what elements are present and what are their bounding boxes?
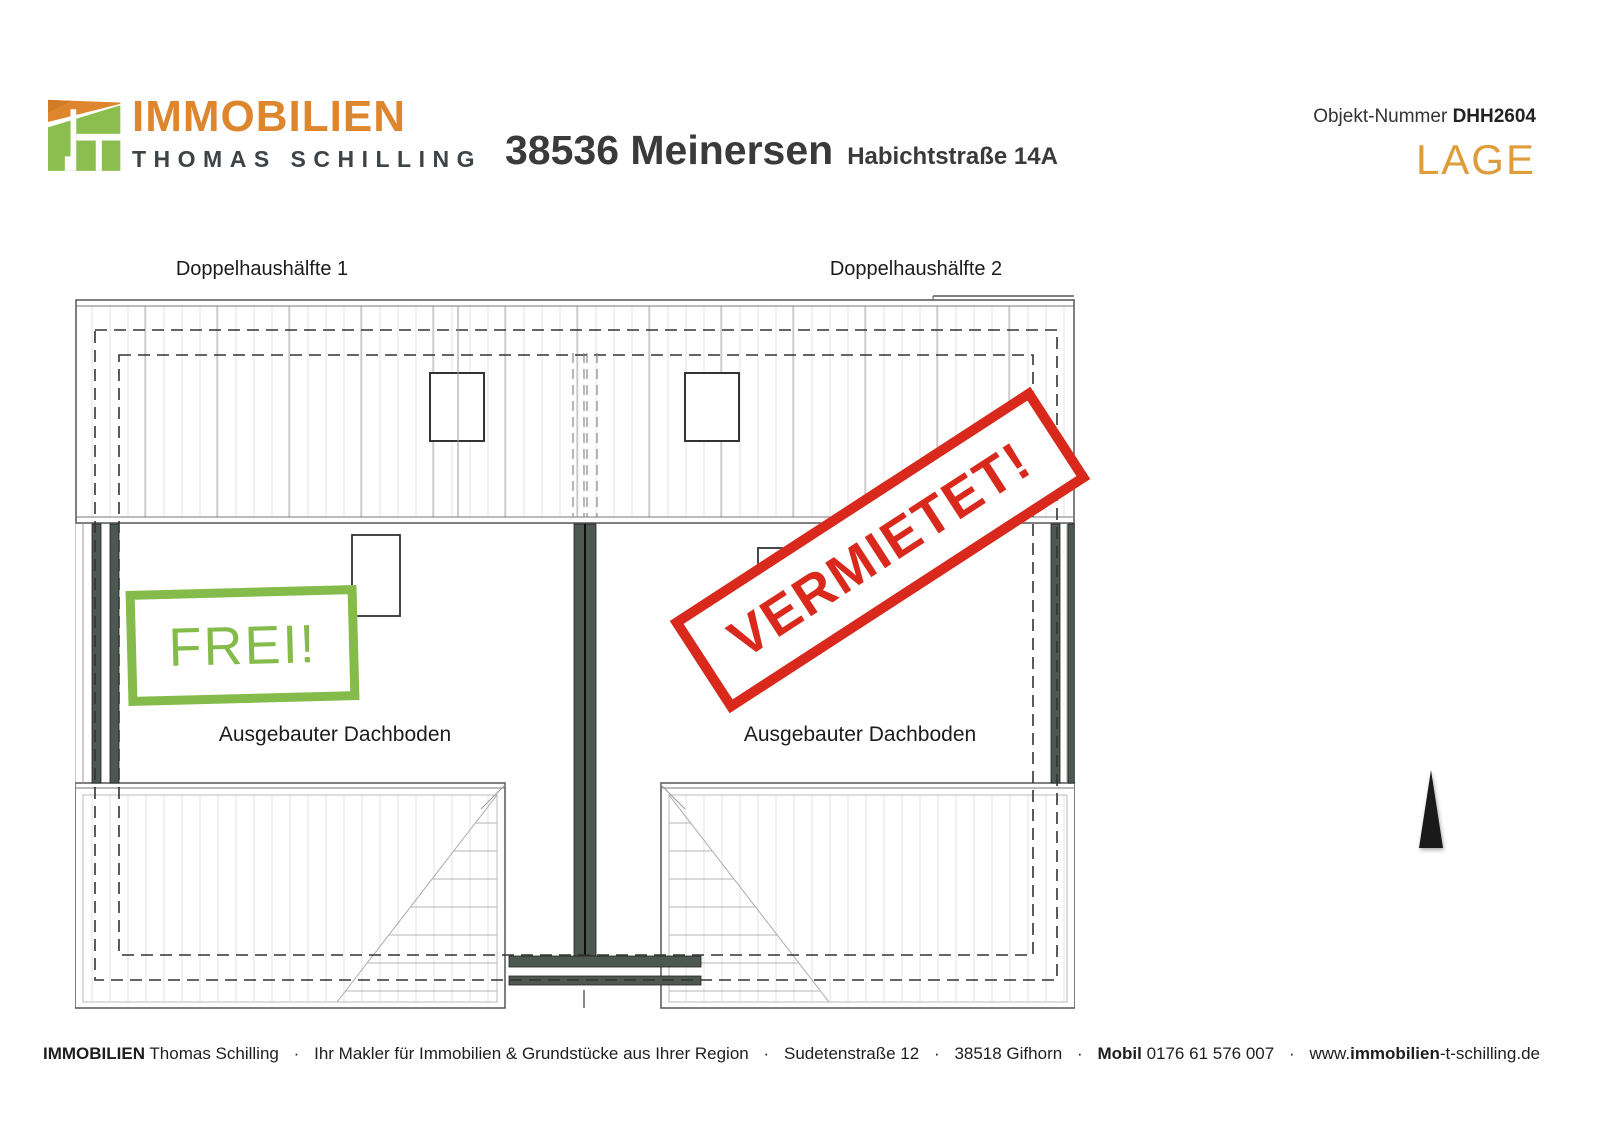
footer-separator: ·: [934, 1044, 940, 1064]
title-block: 38536 Meinersen Habichtstraße 14A: [505, 130, 1058, 171]
unit-2-label: Doppelhaushälfte 2: [830, 258, 1002, 281]
room-label-left: Ausgebauter Dachboden: [219, 723, 451, 747]
footer-city: 38518 Gifhorn: [954, 1044, 1062, 1064]
footer-tagline: Ihr Makler für Immobilien & Grundstücke …: [314, 1044, 749, 1064]
object-number-value: DHH2604: [1453, 106, 1536, 127]
page-title: 38536 Meinersen: [505, 130, 833, 171]
footer-web-bold: immobilien: [1350, 1044, 1440, 1063]
north-arrow-icon: [1412, 768, 1450, 854]
footer-separator: ·: [1077, 1044, 1083, 1064]
footer-web-prefix: www.: [1309, 1044, 1350, 1063]
expose-page: IMMOBILIEN THOMAS SCHILLING 38536 Meiner…: [0, 0, 1600, 1131]
object-number-label: Objekt-Nummer: [1313, 106, 1452, 127]
room-label-right: Ausgebauter Dachboden: [744, 723, 976, 747]
footer-website: www.immobilien-t-schilling.de: [1309, 1044, 1540, 1064]
footer-separator: ·: [1289, 1044, 1295, 1064]
footer-brand: IMMOBILIEN Thomas Schilling: [43, 1044, 279, 1064]
footer-web-suffix: -t-schilling.de: [1440, 1044, 1540, 1063]
logo-brand: IMMOBILIEN: [132, 94, 482, 140]
unit-1-label: Doppelhaushälfte 1: [176, 258, 348, 281]
stamp-free-text: FREI!: [168, 613, 318, 679]
footer-mobile-number: 0176 61 576 007: [1142, 1044, 1274, 1063]
footer-street: Sudetenstraße 12: [784, 1044, 919, 1064]
footer-separator: ·: [294, 1044, 300, 1064]
footer: IMMOBILIEN Thomas Schilling · Ihr Makler…: [43, 1044, 1540, 1064]
page-tag-lage: LAGE: [1313, 136, 1536, 184]
logo-text: IMMOBILIEN THOMAS SCHILLING: [132, 94, 482, 173]
page-subtitle: Habichtstraße 14A: [847, 143, 1058, 171]
object-number: Objekt-Nummer DHH2604: [1313, 106, 1536, 128]
logo-owner: THOMAS SCHILLING: [132, 146, 482, 173]
header-right: Objekt-Nummer DHH2604 LAGE: [1313, 106, 1536, 184]
footer-separator: ·: [764, 1044, 770, 1064]
stamp-free: FREI!: [126, 585, 360, 706]
footer-mobile: Mobil 0176 61 576 007: [1097, 1044, 1274, 1064]
footer-brand-rest: Thomas Schilling: [145, 1044, 279, 1063]
footer-mobile-label: Mobil: [1097, 1044, 1141, 1063]
footer-brand-bold: IMMOBILIEN: [43, 1044, 145, 1063]
logo-house-icon: [48, 94, 122, 176]
